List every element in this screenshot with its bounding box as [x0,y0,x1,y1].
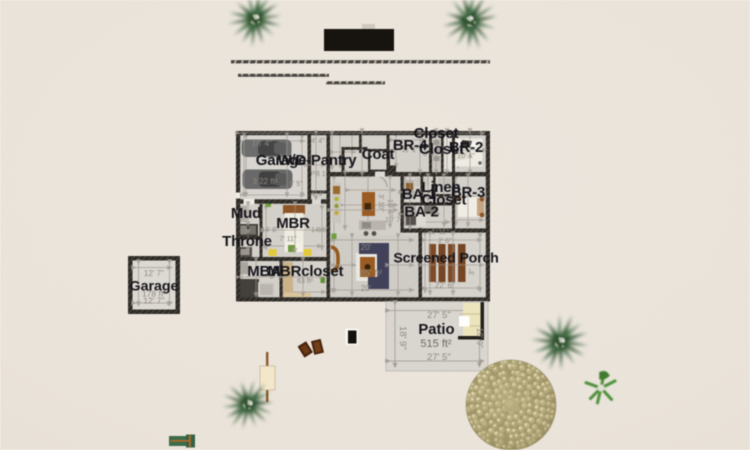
svg-text:3'': 3'' [469,269,476,276]
svg-text:20': 20' [361,284,372,293]
svg-text:12' 7'': 12' 7'' [144,269,165,278]
svg-text:18' 4'': 18' 4'' [252,139,273,148]
svg-text:BR-2: BR-2 [449,139,483,156]
svg-text:MBRcloset: MBRcloset [268,263,344,280]
svg-text:Mud: Mud [231,205,261,222]
svg-text:20': 20' [361,243,372,252]
svg-text:3 22 ft²: 3 22 ft² [253,177,278,186]
svg-text:22' 6'': 22' 6'' [435,281,456,290]
svg-text:14' 8'': 14' 8'' [311,227,329,234]
svg-text:Screened Porch: Screened Porch [393,251,498,267]
svg-text:BR-3: BR-3 [451,184,485,201]
svg-text:4' 4'': 4' 4'' [311,191,325,198]
svg-text:10' 6'': 10' 6'' [386,199,393,217]
svg-text:18' 9'': 18' 9'' [475,328,484,349]
svg-text:9' 5'': 9' 5'' [289,181,303,188]
svg-text:3' 10'': 3' 10'' [377,194,384,212]
svg-text:1' 11'': 1' 11'' [431,229,448,236]
svg-text:2' 6'': 2' 6'' [438,238,452,245]
svg-text:MBR: MBR [276,215,310,232]
svg-text:12' 7'': 12' 7'' [143,296,165,306]
svg-text:27' 5'': 27' 5'' [427,310,451,321]
svg-text:4' 4'': 4' 4'' [311,138,325,145]
svg-text:Patio: Patio [418,322,454,338]
svg-text:Throne: Throne [222,233,272,250]
svg-text:W/D-Pantry: W/D-Pantry [278,152,358,169]
svg-text:515 ft²: 515 ft² [420,338,452,350]
svg-text:PB 1: PB 1 [310,171,325,178]
svg-text:85' ft²: 85' ft² [360,268,382,278]
svg-text:7' 11'': 7' 11'' [279,236,296,243]
svg-text:18' 9'': 18' 9'' [397,326,408,350]
svg-text:BA-2: BA-2 [404,204,438,221]
svg-text:27' 5'': 27' 5'' [427,352,451,363]
svg-text:10' 7'': 10' 7'' [385,217,403,224]
svg-text:Coat: Coat [362,146,395,163]
